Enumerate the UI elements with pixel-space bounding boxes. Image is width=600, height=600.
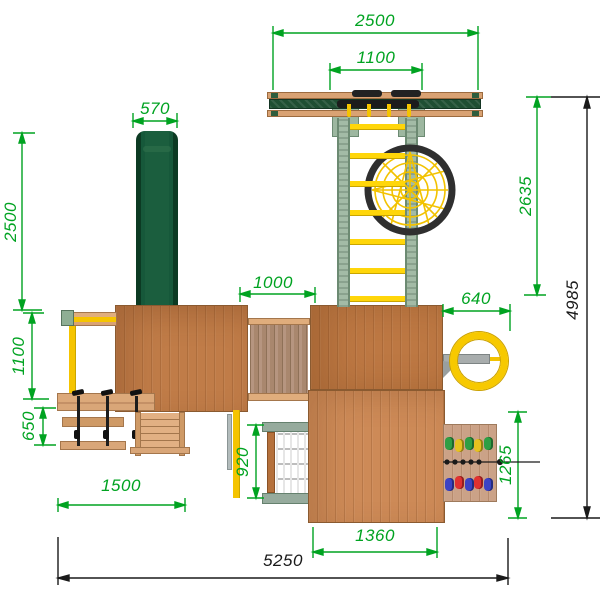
beam-clamp-left xyxy=(271,93,278,98)
dim-label-left-height: 2500 xyxy=(1,202,21,242)
hold-bottom-2 xyxy=(455,476,464,489)
bridge-bottom-rail xyxy=(248,393,312,401)
playground-technical-drawing: 2500 1100 570 2635 2500 1000 640 4985 11… xyxy=(0,0,600,600)
dim-left-width-1500 xyxy=(58,498,185,512)
swing-seat-left xyxy=(352,90,382,97)
dim-label-right-upper-height: 2635 xyxy=(516,176,536,216)
left-module-yellow-post xyxy=(69,326,76,394)
dim-label-slide-width: 570 xyxy=(140,99,170,119)
dim-label-total-height: 4985 xyxy=(563,280,583,320)
dim-label-net-height: 920 xyxy=(233,447,253,477)
ladder-rung-5 xyxy=(350,239,405,245)
stairs-steps xyxy=(141,413,179,449)
lower-tower-roof xyxy=(308,390,445,523)
dim-label-total-width: 5250 xyxy=(263,551,303,571)
hold-bottom-4 xyxy=(474,476,483,489)
left-module-mid-plank xyxy=(62,417,124,427)
hold-bottom-1 xyxy=(445,478,454,491)
dim-label-left-lower-height: 650 xyxy=(19,411,39,441)
dim-label-lower-tower-width: 1360 xyxy=(355,526,395,546)
hold-top-3 xyxy=(465,437,474,450)
rope-2-hook xyxy=(103,430,109,439)
web-netting xyxy=(372,152,448,228)
swing-hook-3 xyxy=(387,104,391,117)
net-top-rail xyxy=(262,422,312,432)
slide xyxy=(136,131,178,308)
dim-label-top-inner-width: 1100 xyxy=(357,48,396,68)
beam-clamp-left-2 xyxy=(271,111,278,116)
hold-bottom-3 xyxy=(465,478,474,491)
steering-wheel-ring xyxy=(450,332,508,390)
swing-hook-4 xyxy=(407,104,411,117)
stairs-base-plank xyxy=(130,447,190,454)
rope-1-hook xyxy=(74,430,80,439)
ladder-rung-3 xyxy=(350,181,405,187)
slide-highlight xyxy=(143,146,171,152)
dim-label-top-width: 2500 xyxy=(355,11,395,31)
hold-top-5 xyxy=(484,437,493,450)
bridge-planks xyxy=(250,325,308,394)
hold-top-1 xyxy=(445,437,454,450)
hold-top-4 xyxy=(474,439,483,452)
ladder-rung-4 xyxy=(350,210,405,216)
ladder-rung-6 xyxy=(350,268,405,274)
ladder-rung-2 xyxy=(350,153,405,159)
dim-label-left-width: 1500 xyxy=(101,476,141,496)
swing-seat-right xyxy=(391,90,421,97)
beam-clamp-right xyxy=(472,93,479,98)
ladder-rung-7 xyxy=(350,296,405,302)
ladder-post-left xyxy=(337,118,350,307)
hold-top-2 xyxy=(455,439,464,452)
swing-hook-2 xyxy=(367,104,371,117)
ladder-rung-1 xyxy=(350,124,405,130)
left-module-green-cap xyxy=(61,310,74,326)
swing-hook-1 xyxy=(347,104,351,117)
net-bottom-rail xyxy=(262,493,314,504)
beam-bottom-rail xyxy=(267,110,483,117)
net-wood-post xyxy=(267,432,275,493)
upper-tower-roof xyxy=(310,305,443,390)
hold-bottom-5 xyxy=(484,478,493,491)
bridge-top-rail xyxy=(248,318,310,325)
dim-label-wheel-offset: 640 xyxy=(461,289,491,309)
left-module-bottom-rail xyxy=(60,441,126,450)
dim-label-left-mid-height: 1100 xyxy=(9,337,29,376)
beam-clamp-right-2 xyxy=(472,111,479,116)
dim-label-wall-height: 1265 xyxy=(496,445,516,485)
dim-label-bridge-width: 1000 xyxy=(253,273,293,293)
firepole-gray xyxy=(227,414,232,470)
